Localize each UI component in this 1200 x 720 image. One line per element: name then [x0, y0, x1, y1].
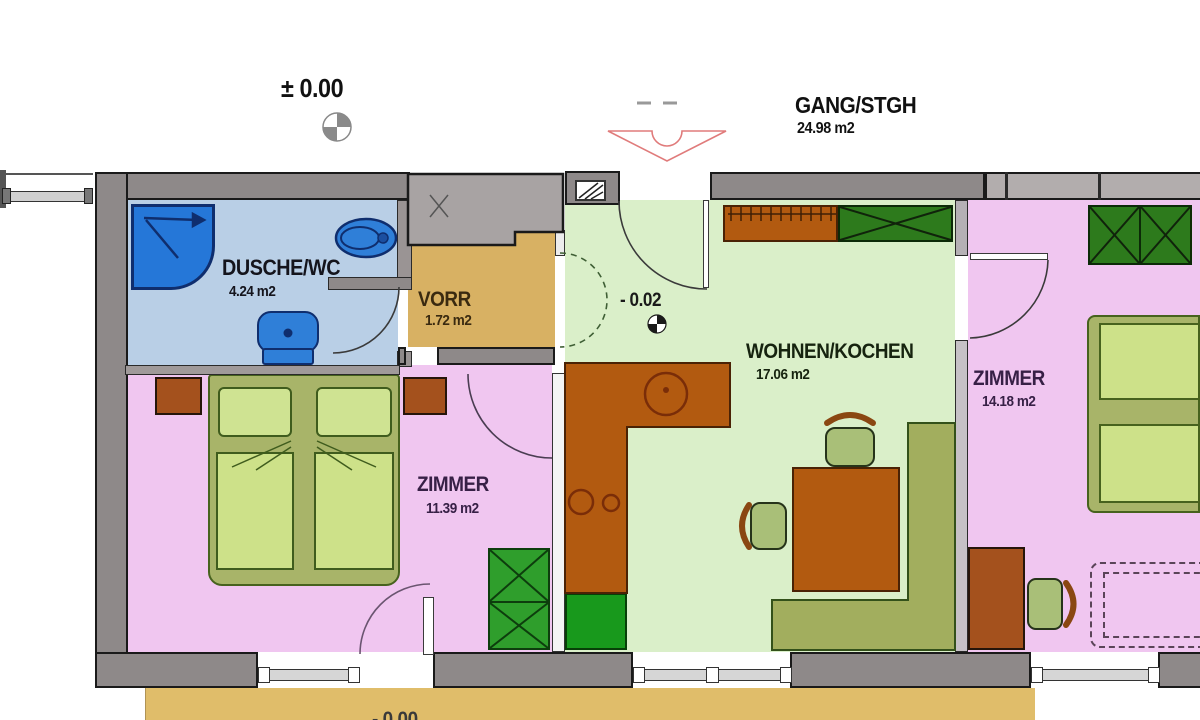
- shaft-square-x: [427, 192, 451, 220]
- desk-chair-seat: [1027, 578, 1063, 630]
- wall-bedroom1-right: [552, 373, 565, 652]
- bedroom1-name: ZIMMER: [417, 473, 489, 497]
- neighbour-wall-line: [3, 173, 93, 175]
- wall-bottom-3: [790, 652, 1031, 688]
- living-name: WOHNEN/KOCHEN: [746, 340, 913, 364]
- wall-bottom-1: [95, 652, 258, 688]
- window-band-top-right: [985, 172, 1200, 200]
- wall-vorr-bottom-jamb: [398, 347, 406, 365]
- wall-top-living: [710, 172, 985, 200]
- toilet-tank: [262, 348, 314, 365]
- bedroom2-name: ZIMMER: [973, 367, 1045, 391]
- nightstand-left: [155, 377, 202, 415]
- living-area: 17.06 m2: [756, 366, 809, 383]
- window-bedroom1: [258, 652, 358, 688]
- bed2-mattress-top: [1099, 323, 1200, 400]
- vorraum-name: VORR: [418, 288, 471, 312]
- wall-vorr-right-upper: [555, 230, 565, 256]
- bed-pillow-left: [218, 387, 292, 437]
- floorplan-canvas: ± 0.00 GANG/STGH 24.98 m2 DUSCHE/WC 4.24…: [0, 0, 1200, 720]
- cabinet-lower: [488, 601, 550, 650]
- terrace-door-leaf: [423, 597, 434, 655]
- wall-vorr-bottom: [437, 347, 555, 365]
- kitchen-counter-top: [723, 205, 838, 242]
- desk: [968, 547, 1025, 650]
- bed2-mattress-bottom: [1099, 424, 1200, 503]
- corridor-name: GANG/STGH: [795, 92, 916, 119]
- terrace-floor: [145, 688, 1035, 720]
- wall-top-bath: [95, 172, 410, 200]
- bedroom1-area: 11.39 m2: [426, 500, 479, 517]
- bedroom2-door-leaf: [970, 253, 1048, 260]
- nightstand-right: [403, 377, 447, 415]
- window-band-divider2: [1098, 172, 1101, 200]
- bath-room-name: DUSCHE/WC: [222, 255, 340, 281]
- wall-living-bedroom2: [955, 340, 968, 652]
- inner-level-label: - 0.02: [620, 290, 661, 312]
- planned-bed-dashed-inner: [1103, 572, 1200, 638]
- wall-bath-bottom: [125, 365, 400, 375]
- wardrobe2-left: [1088, 205, 1141, 265]
- window-band-divider1: [1005, 172, 1008, 200]
- entrance-arrow: [608, 131, 726, 161]
- vorraum-area: 1.72 m2: [425, 312, 471, 329]
- electric-panel: [575, 180, 606, 201]
- bed-pillow-right: [316, 387, 392, 437]
- level-symbol-upper: [323, 113, 351, 141]
- neighbour-window-jamb-left: [2, 188, 11, 204]
- bath-room-area: 4.24 m2: [229, 283, 275, 300]
- window-living: [633, 652, 790, 688]
- shaft-square-right: [526, 186, 553, 213]
- wall-left: [95, 172, 128, 688]
- fridge-block: [565, 593, 627, 650]
- wall-bath-right: [397, 200, 412, 278]
- wall-bottom-4: [1158, 652, 1200, 688]
- neighbour-window-jamb-right: [84, 188, 93, 204]
- chair-seat-top: [825, 427, 875, 467]
- wall-living-bedroom2-pillar: [955, 200, 968, 256]
- wardrobe-living: [838, 205, 953, 242]
- bed-duvet-left: [216, 452, 294, 570]
- wall-bath-door-bar: [328, 277, 412, 290]
- wall-bottom-2: [433, 652, 633, 688]
- shaft-square-mid: [472, 193, 496, 220]
- neighbour-window-glazing: [8, 191, 88, 202]
- upper-level-label: ± 0.00: [281, 73, 343, 104]
- terrace-level-label: - 0.00: [372, 708, 418, 720]
- window-bedroom2: [1031, 652, 1158, 688]
- toilet-bowl: [257, 311, 319, 353]
- entrance-door-leaf: [703, 200, 709, 288]
- chair-seat-left: [750, 502, 787, 550]
- corridor-area: 24.98 m2: [797, 120, 854, 138]
- dining-table: [792, 467, 900, 592]
- bed-duvet-right: [314, 452, 394, 570]
- wardrobe2-right: [1139, 205, 1192, 265]
- bedroom2-area: 14.18 m2: [982, 393, 1035, 410]
- cabinet-upper: [488, 548, 550, 603]
